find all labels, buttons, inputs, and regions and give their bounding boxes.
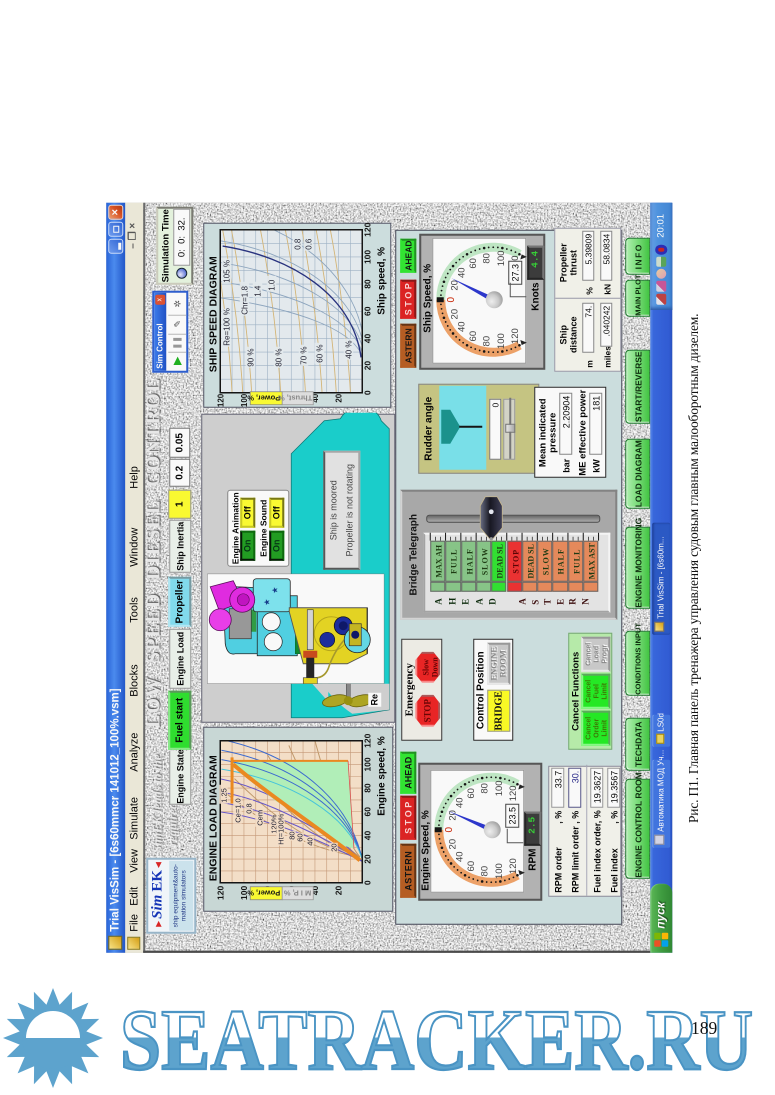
svg-text:80: 80 bbox=[479, 783, 490, 794]
svg-text:120: 120 bbox=[510, 328, 521, 344]
svg-text:100: 100 bbox=[239, 886, 249, 900]
svg-text:40: 40 bbox=[305, 838, 314, 846]
svg-text:60: 60 bbox=[468, 258, 479, 269]
svg-text:40: 40 bbox=[454, 798, 465, 809]
svg-text:1.0: 1.0 bbox=[267, 279, 276, 291]
svg-text:Ce=1.0: Ce=1.0 bbox=[233, 799, 242, 823]
svg-text:Power, %: Power, % bbox=[247, 889, 280, 898]
svg-text:60: 60 bbox=[362, 307, 372, 317]
svg-text:★: ★ bbox=[262, 599, 271, 606]
svg-text:20: 20 bbox=[333, 886, 343, 896]
svg-text:70 %: 70 % bbox=[299, 347, 308, 365]
svg-text:20: 20 bbox=[447, 810, 458, 821]
svg-text:100: 100 bbox=[362, 250, 372, 264]
svg-text:80 %: 80 % bbox=[274, 349, 283, 367]
svg-text:20: 20 bbox=[329, 844, 338, 852]
svg-text:0: 0 bbox=[446, 297, 457, 303]
svg-text:40: 40 bbox=[362, 334, 372, 344]
svg-text:100: 100 bbox=[362, 757, 372, 771]
svg-text:0.8: 0.8 bbox=[293, 238, 302, 250]
svg-text:120: 120 bbox=[215, 886, 225, 900]
svg-text:1.4: 1.4 bbox=[253, 285, 262, 297]
svg-text:80: 80 bbox=[362, 279, 372, 289]
svg-text:0: 0 bbox=[362, 390, 372, 395]
svg-text:SEATRACKER.RU: SEATRACKER.RU bbox=[120, 991, 753, 1088]
svg-text:40: 40 bbox=[454, 852, 465, 863]
svg-text:20: 20 bbox=[334, 393, 343, 402]
svg-text:60: 60 bbox=[468, 331, 479, 342]
svg-text:60: 60 bbox=[466, 861, 477, 872]
svg-text:40 %: 40 % bbox=[344, 341, 353, 359]
svg-text:Ht=100%: Ht=100% bbox=[276, 814, 285, 845]
svg-text:0: 0 bbox=[444, 827, 455, 833]
svg-text:Re=100 %: Re=100 % bbox=[222, 308, 231, 346]
svg-text:80: 80 bbox=[479, 866, 490, 877]
svg-text:Cem: Cem bbox=[255, 810, 264, 826]
svg-text:1.25: 1.25 bbox=[219, 788, 228, 803]
svg-text:120: 120 bbox=[362, 223, 372, 237]
svg-text:0: 0 bbox=[362, 880, 372, 885]
svg-text:40: 40 bbox=[362, 831, 372, 841]
svg-text:Thrust, %: Thrust, % bbox=[278, 394, 312, 403]
svg-text:M I P, %: M I P, % bbox=[283, 889, 311, 898]
svg-text:60: 60 bbox=[362, 807, 372, 817]
svg-text:★: ★ bbox=[270, 587, 279, 594]
svg-text:Power, %: Power, % bbox=[247, 394, 280, 403]
svg-text:0.8: 0.8 bbox=[244, 804, 253, 814]
svg-text:60: 60 bbox=[466, 788, 477, 799]
svg-text:100: 100 bbox=[494, 863, 505, 879]
svg-text:100: 100 bbox=[496, 251, 507, 267]
svg-text:100: 100 bbox=[494, 781, 505, 797]
svg-text:120: 120 bbox=[508, 786, 519, 802]
svg-text:90 %: 90 % bbox=[246, 349, 255, 367]
svg-text:20: 20 bbox=[362, 854, 372, 864]
svg-text:Chr=1.8: Chr=1.8 bbox=[240, 286, 249, 315]
svg-text:80: 80 bbox=[362, 783, 372, 793]
svg-text:105 %: 105 % bbox=[222, 260, 231, 283]
svg-text:40: 40 bbox=[456, 268, 467, 279]
svg-text:60: 60 bbox=[295, 834, 304, 842]
svg-text:40: 40 bbox=[456, 322, 467, 333]
svg-text:80: 80 bbox=[481, 336, 492, 347]
svg-text:80: 80 bbox=[481, 253, 492, 264]
svg-text:20: 20 bbox=[447, 839, 458, 850]
svg-text:20: 20 bbox=[449, 309, 460, 320]
svg-text:0.6: 0.6 bbox=[304, 238, 313, 250]
svg-text:60 %: 60 % bbox=[315, 345, 324, 363]
svg-text:20: 20 bbox=[362, 361, 372, 371]
svg-text:120: 120 bbox=[508, 858, 519, 874]
svg-text:120: 120 bbox=[216, 393, 225, 407]
svg-text:100: 100 bbox=[496, 333, 507, 349]
svg-text:120: 120 bbox=[362, 734, 372, 748]
